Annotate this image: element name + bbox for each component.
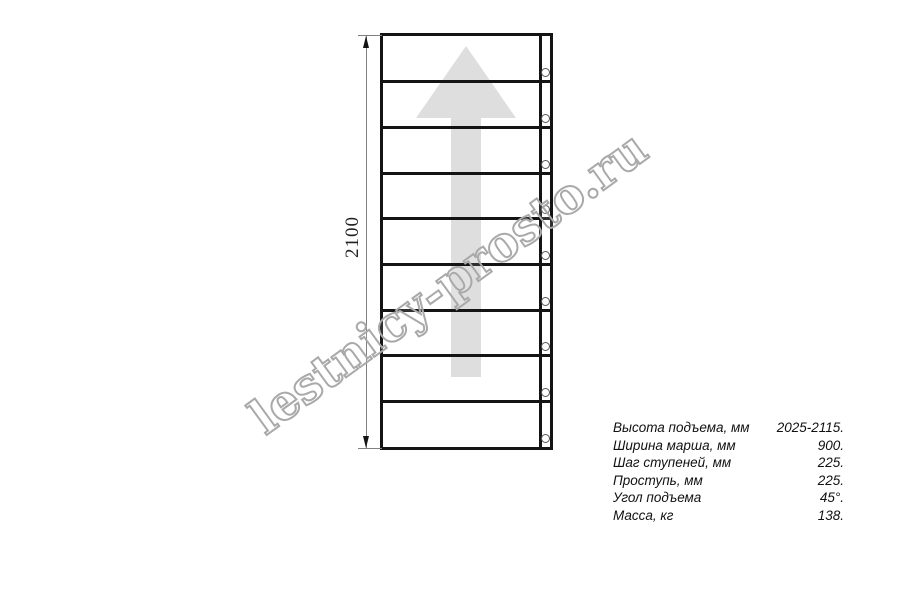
step-line: [383, 80, 550, 83]
spec-value: 45°.: [820, 489, 844, 507]
stringer-hole-icon: [541, 68, 550, 77]
dimension-value-label: 2100: [342, 206, 362, 268]
spec-value: 900.: [818, 437, 844, 455]
stair-drawing-canvas: 2100 lestnicy-prosto.ru Высота подъема, …: [0, 0, 900, 600]
stringer-hole-icon: [541, 114, 550, 123]
dimension-arrowhead-bottom-icon: [363, 436, 369, 448]
step-line: [383, 172, 550, 175]
spec-label: Проступь, мм: [613, 472, 703, 490]
dimension-line: [366, 35, 367, 449]
dimension-extension-top: [358, 35, 382, 36]
spec-row: Ширина марша, мм900.: [613, 437, 844, 455]
spec-value: 2025-2115.: [777, 419, 844, 437]
spec-row: Шаг ступеней, мм225.: [613, 454, 844, 472]
spec-value: 225.: [818, 472, 844, 490]
dimension-extension-bottom: [358, 448, 382, 449]
spec-value: 138.: [818, 507, 844, 525]
spec-row: Проступь, мм225.: [613, 472, 844, 490]
stringer-hole-icon: [541, 434, 550, 443]
spec-row: Масса, кг138.: [613, 507, 844, 525]
spec-row: Высота подъема, мм2025-2115.: [613, 419, 844, 437]
stringer-hole-icon: [541, 388, 550, 397]
spec-label: Шаг ступеней, мм: [613, 454, 731, 472]
stringer-hole-icon: [541, 342, 550, 351]
step-line: [383, 126, 550, 129]
spec-table: Высота подъема, мм2025-2115.Ширина марша…: [613, 419, 844, 525]
stringer-hole-icon: [541, 297, 550, 306]
spec-value: 225.: [818, 454, 844, 472]
spec-label: Масса, кг: [613, 507, 673, 525]
spec-label: Угол подъема: [613, 489, 701, 507]
step-line: [383, 400, 550, 403]
dimension-arrowhead-top-icon: [363, 36, 369, 48]
spec-row: Угол подъема45°.: [613, 489, 844, 507]
spec-label: Высота подъема, мм: [613, 419, 749, 437]
spec-label: Ширина марша, мм: [613, 437, 736, 455]
